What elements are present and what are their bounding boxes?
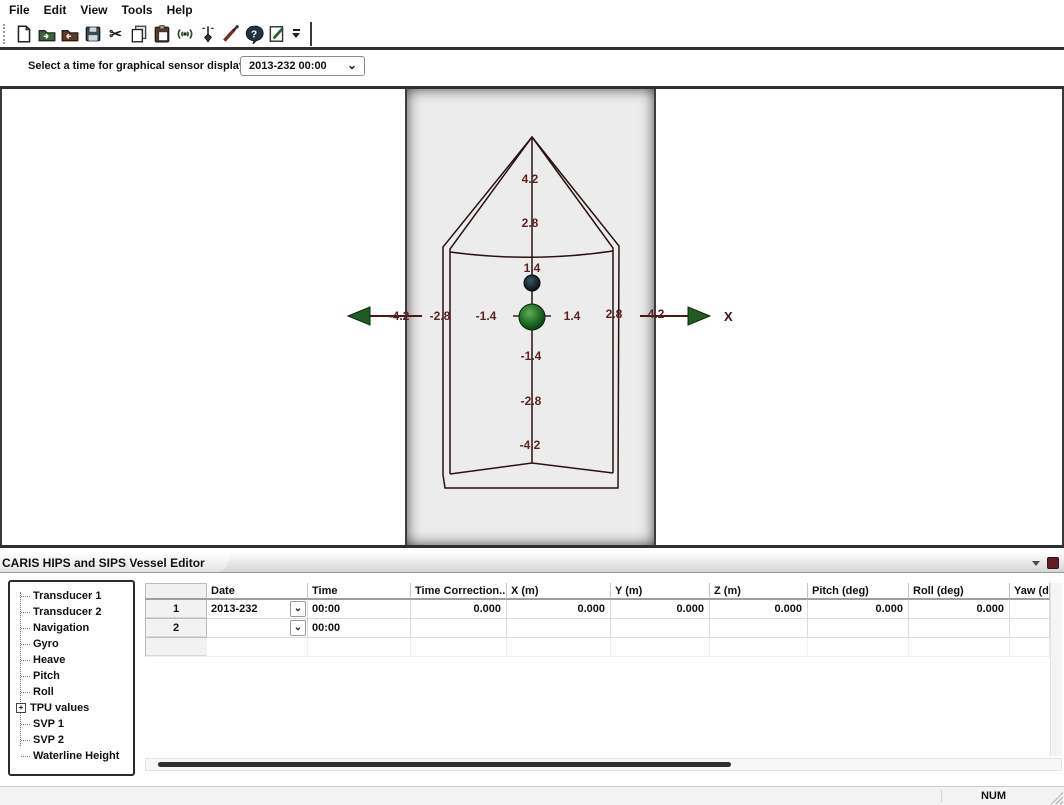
yaw-cell[interactable] [1010,600,1050,619]
tree-item-roll[interactable]: Roll [10,684,133,700]
tree-item-label: Gyro [33,638,59,650]
help-icon[interactable]: ? [242,23,265,45]
tree-item-label: Pitch [33,670,60,682]
time-cell[interactable]: 00:00 [308,619,411,638]
svg-text:4.2: 4.2 [522,172,539,186]
probe-tool-icon[interactable] [219,23,242,45]
save-icon[interactable] [81,23,104,45]
cut-icon[interactable]: ✂ [104,23,127,45]
svg-text:?: ? [250,29,256,40]
tree-item-svp-2[interactable]: SVP 2 [10,732,133,748]
panel-title: CARIS HIPS and SIPS Vessel Editor [2,556,205,570]
broadcast-icon[interactable] [173,23,196,45]
z-cell[interactable]: 0.000 [710,600,808,619]
open-project-icon[interactable] [35,23,58,45]
roll-cell[interactable] [909,619,1010,638]
status-bar-separator [941,790,942,802]
tree-item-pitch[interactable]: Pitch [10,668,133,684]
header-date[interactable]: Date [207,583,308,600]
svg-text:2.8: 2.8 [606,307,623,321]
menu-edit[interactable]: Edit [39,2,76,18]
row-number-cell[interactable]: 1 [145,600,207,619]
svg-text:4.2: 4.2 [648,307,665,321]
import-folder-icon[interactable] [58,23,81,45]
yaw-cell[interactable] [1010,619,1050,638]
date-cell[interactable]: ⌄ [207,619,308,638]
x-axis-arrow-right [688,307,710,325]
header-x[interactable]: X (m) [507,583,611,600]
table-header-row: Date Time Time Correction... X (m) Y (m)… [145,583,1050,600]
x-cell[interactable]: 0.000 [507,600,611,619]
tree-item-transducer-1[interactable]: Transducer 1 [10,588,133,604]
time-selector-combo[interactable]: 2013-232 00:00 ⌄ [240,56,365,76]
tree-item-transducer-2[interactable]: Transducer 2 [10,604,133,620]
header-time[interactable]: Time [308,583,411,600]
tree-item-navigation[interactable]: Navigation [10,620,133,636]
tree-item-label: SVP 2 [33,734,64,746]
date-dropdown-icon[interactable]: ⌄ [290,620,306,636]
header-corner [145,583,207,600]
tree-item-gyro[interactable]: Gyro [10,636,133,652]
vessel-editor-panel: Transducer 1 Transducer 2 Navigation Gyr… [0,573,1064,786]
tree-item-svp-1[interactable]: SVP 1 [10,716,133,732]
status-bar: NUM [0,786,1064,805]
y-cell[interactable]: 0.000 [611,600,710,619]
header-yaw[interactable]: Yaw (deg [1010,583,1050,600]
chevron-down-icon[interactable]: ⌄ [347,58,357,72]
menu-view[interactable]: View [75,2,116,18]
panel-menu-icon[interactable] [1032,561,1040,566]
tree-item-tpu-values[interactable]: TPU values [10,700,133,716]
date-cell[interactable]: 2013-232⌄ [207,600,308,619]
horizontal-scrollbar-thumb[interactable] [158,762,731,767]
y-cell[interactable] [611,619,710,638]
sensor-values-table: Date Time Time Correction... X (m) Y (m)… [145,583,1050,657]
svg-text:2.8: 2.8 [522,216,539,230]
edit-notes-icon[interactable] [265,23,288,45]
x-cell[interactable] [507,619,611,638]
svg-text:1.4: 1.4 [524,261,541,275]
tree-item-label: SVP 1 [33,718,64,730]
vessel-plan-view-canvas[interactable]: X -4.2 -2.8 -1.4 1.4 2.8 4.2 4.2 2.8 1.4… [0,89,1064,545]
sensor-sphere-dark[interactable] [524,275,540,291]
tree-item-label: Waterline Height [33,750,119,762]
separator-below-graphics [0,545,1064,548]
sensor-tree: Transducer 1 Transducer 2 Navigation Gyr… [8,580,135,776]
resize-grip-icon[interactable] [1051,792,1063,804]
toolbar: ✂ ? [0,20,1064,47]
menu-bar: File Edit View Tools Help [0,0,1064,20]
tree-item-waterline-height[interactable]: Waterline Height [10,748,133,764]
date-dropdown-icon[interactable]: ⌄ [290,601,306,617]
svg-text:-4.2: -4.2 [389,309,410,323]
svg-text:-2.8: -2.8 [521,394,542,408]
menu-help[interactable]: Help [162,2,202,18]
time-correction-cell[interactable]: 0.000 [411,600,507,619]
time-selector-value: 2013-232 00:00 [249,60,327,72]
tree-item-label: Transducer 1 [33,590,101,602]
pitch-cell[interactable]: 0.000 [808,600,909,619]
table-row: 2 ⌄ 00:00 [145,619,1050,638]
tree-item-label: Roll [33,686,54,698]
row-number-cell[interactable]: 2 [145,619,207,638]
time-selector-row: Select a time for graphical sensor displ… [0,50,1064,86]
table-horizontal-scrollbar[interactable] [145,758,1062,771]
header-z[interactable]: Z (m) [710,583,808,600]
svg-text:-1.4: -1.4 [521,349,542,363]
new-document-icon[interactable] [12,23,35,45]
header-y[interactable]: Y (m) [611,583,710,600]
svg-text:-4.2: -4.2 [520,438,541,452]
table-vertical-scrollbar[interactable] [1050,583,1062,756]
time-cell[interactable]: 00:00 [308,600,411,619]
toolbar-grip[interactable] [3,24,6,44]
x-axis-label: X [724,309,733,324]
pitch-cell[interactable] [808,619,909,638]
header-time-correction[interactable]: Time Correction... [411,583,507,600]
x-axis-arrow-left [348,307,370,325]
toolbar-separator [310,22,312,46]
date-value: 2013-232 [211,603,258,615]
svg-text:1.4: 1.4 [564,309,581,323]
tree-item-label: Heave [33,654,65,666]
header-pitch[interactable]: Pitch (deg) [808,583,909,600]
close-icon[interactable] [1047,557,1059,569]
tree-item-heave[interactable]: Heave [10,652,133,668]
roll-cell[interactable]: 0.000 [909,600,1010,619]
table-empty-row [145,638,1050,657]
time-selector-label: Select a time for graphical sensor displ… [28,60,249,72]
tree-item-label: TPU values [30,702,89,714]
num-lock-indicator: NUM [981,790,1006,802]
panel-title-bar: CARIS HIPS and SIPS Vessel Editor [0,553,1064,573]
table-row: 1 2013-232⌄ 00:00 0.000 0.000 0.000 0.00… [145,600,1050,619]
tree-item-label: Navigation [33,622,89,634]
expander-plus-icon[interactable] [16,703,26,713]
svg-text:-2.8: -2.8 [430,309,451,323]
menu-file[interactable]: File [4,2,39,18]
vessel-editor-window: File Edit View Tools Help ✂ [0,0,1064,805]
toolbar-overflow-icon[interactable] [292,29,300,38]
copy-icon[interactable] [127,23,150,45]
plumb-sensor-icon[interactable] [196,23,219,45]
menu-tools[interactable]: Tools [116,2,161,18]
tree-item-label: Transducer 2 [33,606,101,618]
origin-sphere-green[interactable] [519,304,545,330]
vessel-wireframe: X -4.2 -2.8 -1.4 1.4 2.8 4.2 4.2 2.8 1.4… [2,89,1062,545]
header-roll[interactable]: Roll (deg) [909,583,1010,600]
svg-text:-1.4: -1.4 [476,309,497,323]
paste-icon[interactable] [150,23,173,45]
time-correction-cell[interactable] [411,619,507,638]
z-cell[interactable] [710,619,808,638]
